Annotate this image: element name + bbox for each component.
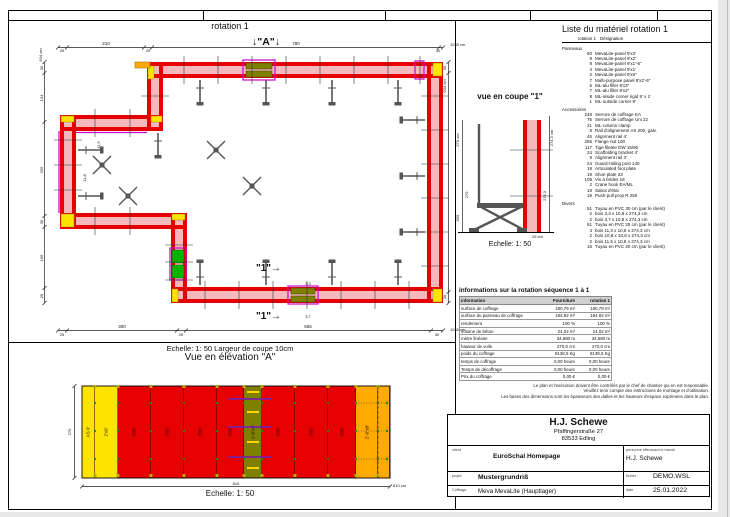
dim-label: 30 (39, 65, 44, 70)
dimension-ticks (43, 46, 451, 489)
tie-dot (261, 402, 263, 404)
section-marker-a: ↓"A"↓ (228, 36, 304, 48)
push-pull-prop (394, 80, 402, 106)
info-cell-value: 0,00 heure (539, 359, 577, 364)
dim-total-label: 604 cm (442, 79, 447, 93)
info-cell-label: surface de coffrage (460, 306, 539, 311)
info-cell-value: 270,0 cm (539, 344, 577, 349)
info-cell-value: 8138,5 Kg (577, 351, 611, 356)
dim-label: 25 (39, 293, 44, 298)
dim-total-label: 1045 cm (450, 42, 466, 47)
rotation-info-table: informations sur la rotation séquence 1 … (459, 287, 612, 381)
edge-clamp (243, 385, 246, 388)
filler-dim-label: 3,3 (305, 281, 311, 286)
tie-dot (327, 430, 329, 432)
material-item-qty: 1 (562, 99, 592, 104)
magenta-accents (59, 60, 424, 304)
dim-label: 25 cm (532, 234, 544, 239)
info-cell-value: 180,79 m² (577, 306, 611, 311)
client-label: client (452, 448, 461, 452)
info-table-row: surface de coffrage180,79 m²180,79 m² (459, 305, 612, 313)
info-cell-value: 0,00 heure (577, 367, 611, 372)
edge-clamp (216, 385, 219, 388)
tie-dot (294, 458, 296, 460)
edge-clamp (327, 474, 330, 477)
dim-label: 30 (436, 48, 441, 53)
tie-dot (327, 458, 329, 460)
dim-label: 210 (102, 41, 110, 46)
section-view: 270 cm 270 609 274,3 cm 274,3 25 cm (455, 116, 554, 239)
disclaimer-line: Les bases des dimensions sont les épaiss… (455, 394, 709, 399)
worker-value: H.J. Schewe (626, 455, 663, 462)
tie-dot (216, 402, 218, 404)
elevation-overlays: 270 810 810 cm (67, 385, 407, 488)
dim-label: 30 (435, 332, 440, 337)
push-pull-prop (262, 80, 270, 106)
push-pull-prop (154, 133, 162, 159)
tie-dot (243, 458, 245, 460)
disclaimer-text: Le plan et l'exécution doivent être cont… (455, 383, 709, 399)
date-label: date (626, 488, 633, 492)
material-item-row: 1ML-outside corner 9' (562, 99, 712, 104)
info-table-title: informations sur la rotation séquence 1 … (459, 287, 612, 294)
edge-clamp (327, 385, 330, 388)
info-table-row: Prix du coffrage0,00 €0,00 € (459, 373, 612, 381)
dim-label: 609 (455, 214, 460, 221)
plan-sheet: 25 210 20 780 30 1045 cm 25 300 25 665 3… (0, 0, 730, 517)
tie-dot (386, 402, 388, 404)
plan-symbol (395, 102, 402, 106)
info-table-row: rendement100 %100 % (459, 320, 612, 328)
tie-dot (386, 458, 388, 460)
dim-total-label: 604 cm (38, 48, 43, 62)
info-table-row: mètre linéaire34,580 m34,580 m (459, 335, 612, 343)
scaffold-bracket (474, 124, 524, 230)
elevation-scale: Echelle: 1: 50 (8, 489, 452, 498)
tie-dot (243, 430, 245, 432)
info-cell-value: 0,00 € (539, 374, 577, 379)
brace-cross (207, 141, 225, 159)
edge-clamp (216, 474, 219, 477)
edge-clamp (261, 474, 264, 477)
worker-label: personne effectuant le travail (626, 448, 675, 452)
edge-clamp (94, 474, 97, 477)
edge-clamp (150, 474, 153, 477)
section-marker-1-top: "1"→ (256, 263, 281, 274)
edge-clamp (150, 385, 153, 388)
info-cell-label: rendement (460, 321, 539, 326)
push-pull-prop (400, 116, 426, 124)
file-label: fichier (626, 474, 636, 478)
title-block-divider (448, 445, 709, 446)
info-cell-value: 34,580 m (577, 336, 611, 341)
info-table-row: hauteur de voile270,0 cm270,0 cm (459, 343, 612, 351)
project-value: Mustergrundriß (478, 474, 528, 481)
dim-label: 20 (146, 48, 151, 53)
material-list-qty-header: rotation 1 (562, 36, 596, 41)
material-item-name: Tuyau en PVC 20 cm (par le client) (595, 244, 665, 249)
info-cell-value: 0,00 heure (539, 367, 577, 372)
info-cell-value: 34,580 m (539, 336, 577, 341)
dim-label: 30 (39, 219, 44, 224)
dim-label: 810 (233, 481, 240, 486)
tie-dot (327, 402, 329, 404)
plan-symbol (100, 163, 105, 168)
info-cell-label: mètre linéaire (460, 336, 539, 341)
tie-dot (94, 430, 96, 432)
info-header-cell: Fourniture (539, 298, 577, 303)
date-value: 25.01.2022 (653, 487, 687, 494)
edge-clamp (183, 474, 186, 477)
tie-dot (294, 402, 296, 404)
filler-dim-label: 3,7 (305, 314, 311, 319)
tie-dot (94, 458, 96, 460)
dim-label: 274,3 (542, 190, 547, 201)
edge-clamp (355, 385, 358, 388)
info-cell-value: 0,00 heure (577, 359, 611, 364)
tie-dot (150, 458, 152, 460)
info-cell-value: 184,92 m² (577, 313, 611, 318)
dim-label: 25 (60, 332, 65, 337)
tie-dot (117, 458, 119, 460)
dim-label: 270 cm (455, 133, 460, 147)
info-table-header-row: informationFourniturerotation 1 (459, 296, 612, 305)
section-title: vue en coupe "1" (452, 92, 568, 101)
info-table-row: temps de coffrage0,00 heure0,00 heure (459, 358, 612, 366)
info-cell-value: 100 % (539, 321, 577, 326)
company-name: H.J. Schewe (448, 417, 709, 428)
info-header-cell: information (460, 298, 539, 303)
edge-clamp (355, 474, 358, 477)
material-list-title: Liste du matériel rotation 1 (562, 24, 712, 34)
plan-symbol (197, 102, 204, 106)
file-value: DEMO.WSL (653, 473, 690, 480)
client-value: EuroSchal Homepage (493, 453, 560, 460)
tie-dot (243, 402, 245, 404)
material-item-name: ML-outside corner 9' (595, 99, 636, 104)
edge-clamp (243, 474, 246, 477)
formwork-value: Meva MevaLite (Hauptlager) (478, 488, 556, 495)
plan-symbol (400, 229, 404, 236)
company-address-line1: Pfaffingerstraße 27 (448, 429, 709, 435)
plan-title: rotation 1 (8, 21, 452, 31)
dim-label: 255 (39, 166, 44, 173)
dim-total-label: 810 cm (393, 483, 407, 488)
company-address-line2: 83533 Edling (448, 436, 709, 442)
info-table-row: volume de béton24,02 m³24,02 m³ (459, 328, 612, 336)
dim-label: 270 (464, 191, 469, 198)
plan-symbol (329, 102, 336, 106)
tie-dot (150, 402, 152, 404)
push-pull-prop (328, 80, 336, 106)
material-item-qty: 19 (562, 193, 592, 198)
info-cell-value: 100 % (577, 321, 611, 326)
dim-label: 30 (442, 65, 447, 70)
info-header-cell: rotation 1 (577, 298, 611, 303)
plan-symbol (197, 260, 204, 264)
filler-dim-label: 11,8 (82, 173, 87, 181)
dim-label: 665 (304, 324, 312, 329)
plan-symbol (100, 193, 104, 200)
push-pull-prop (328, 260, 336, 286)
dim-label: 30 (442, 294, 447, 299)
edge-clamp (261, 385, 264, 388)
brace-cross (243, 177, 261, 195)
material-list-name-header: Désignation (600, 36, 623, 41)
push-pull-prop (400, 228, 426, 236)
tie-dot (216, 458, 218, 460)
dim-label: 25 (60, 48, 65, 53)
info-cell-value: 184,92 m² (539, 313, 577, 318)
dim-label: 274,3 cm (549, 129, 554, 146)
info-cell-label: surface du panneau de coffrage (460, 313, 539, 318)
section-marker-1-bottom: "1"→ (256, 311, 281, 322)
tie-dot (150, 430, 152, 432)
tie-dot (117, 402, 119, 404)
tie-dot (216, 430, 218, 432)
plan-symbol (400, 173, 404, 180)
plan-symbol (250, 184, 255, 189)
material-list-header: rotation 1 Désignation (562, 36, 712, 43)
material-item-row: 19Push-pull prop R 250 (562, 193, 712, 198)
info-cell-value: 0,00 € (577, 374, 611, 379)
edge-clamp (294, 474, 297, 477)
plan-symbol (263, 102, 270, 106)
title-block-divider (448, 471, 709, 472)
info-table-row: poids du coffrage8138,5 Kg8138,5 Kg (459, 351, 612, 359)
filler-dim-label: 11,5 (96, 140, 101, 148)
plan-symbol (155, 155, 162, 159)
title-block-divider (448, 485, 709, 486)
material-item-row: 16Tuyau en PVC 20 cm (par le client) (562, 244, 712, 249)
tie-dot (183, 458, 185, 460)
tie-dot (386, 430, 388, 432)
push-pull-prop (394, 260, 402, 286)
info-table-row: Temps de décoffrage0,00 heure0,00 heure (459, 366, 612, 374)
info-cell-label: Temps de décoffrage (460, 367, 539, 372)
dim-label: 134 (39, 94, 44, 101)
elevation-title: Vue en élévation "A" (8, 352, 452, 363)
material-list-groups: Panneaux50MevaLite-panel 9'x3'9MevaLite-… (562, 46, 712, 250)
corner-panels (61, 63, 442, 302)
edge-clamp (294, 385, 297, 388)
edge-clamp (117, 474, 120, 477)
plan-walls (59, 60, 443, 304)
tie-dot (261, 458, 263, 460)
material-item-qty: 16 (562, 244, 592, 249)
plan-symbol (126, 194, 131, 199)
formwork-label: Coffrage (452, 488, 467, 492)
tie-dot (183, 430, 185, 432)
material-item-name: Push-pull prop R 250 (595, 193, 637, 198)
plan-symbol (395, 260, 402, 264)
tie-dot (183, 402, 185, 404)
brace-cross (93, 156, 111, 174)
tie-dot (117, 430, 119, 432)
dim-label: 270 (67, 428, 72, 435)
title-block: H.J. Schewe Pfaffingerstraße 27 83533 Ed… (447, 414, 710, 497)
info-cell-value: 24,02 m³ (539, 329, 577, 334)
info-cell-label: temps de coffrage (460, 359, 539, 364)
push-pull-prop (196, 80, 204, 106)
push-pull-prop (78, 192, 104, 200)
tie-dot (261, 430, 263, 432)
material-list: Liste du matériel rotation 1 rotation 1 … (562, 24, 712, 249)
plan-symbol (400, 117, 404, 124)
info-cell-value: 180,79 m² (539, 306, 577, 311)
info-cell-label: hauteur de voile (460, 344, 539, 349)
dim-label: 25 (179, 332, 184, 337)
plan-symbols (54, 56, 449, 309)
plan-symbol (214, 148, 219, 153)
info-cell-value: 8138,5 Kg (539, 351, 577, 356)
info-cell-label: volume de béton (460, 329, 539, 334)
title-block-divider (623, 445, 624, 498)
dim-label: 300 (118, 324, 126, 329)
info-table-rows: informationFourniturerotation 1surface d… (459, 296, 612, 381)
tie-dot (294, 430, 296, 432)
section-scale: Echelle: 1: 50 (452, 241, 568, 248)
edge-clamp (94, 385, 97, 388)
edge-clamp (117, 385, 120, 388)
info-cell-label: poids du coffrage (460, 351, 539, 356)
info-cell-value: 270,0 cm (577, 344, 611, 349)
info-table-row: surface du panneau de coffrage184,92 m²1… (459, 313, 612, 321)
plan-symbol (329, 260, 336, 264)
project-label: projet (452, 474, 462, 478)
edge-clamp (183, 385, 186, 388)
push-pull-prop (196, 260, 204, 286)
tie-dot (94, 402, 96, 404)
outside-corner-panel (135, 62, 150, 68)
dim-label: 166 (39, 254, 44, 261)
info-cell-value: 24,02 m³ (577, 329, 611, 334)
info-cell-label: Prix du coffrage (460, 374, 539, 379)
push-pull-prop (400, 172, 426, 180)
brace-cross (119, 187, 137, 205)
